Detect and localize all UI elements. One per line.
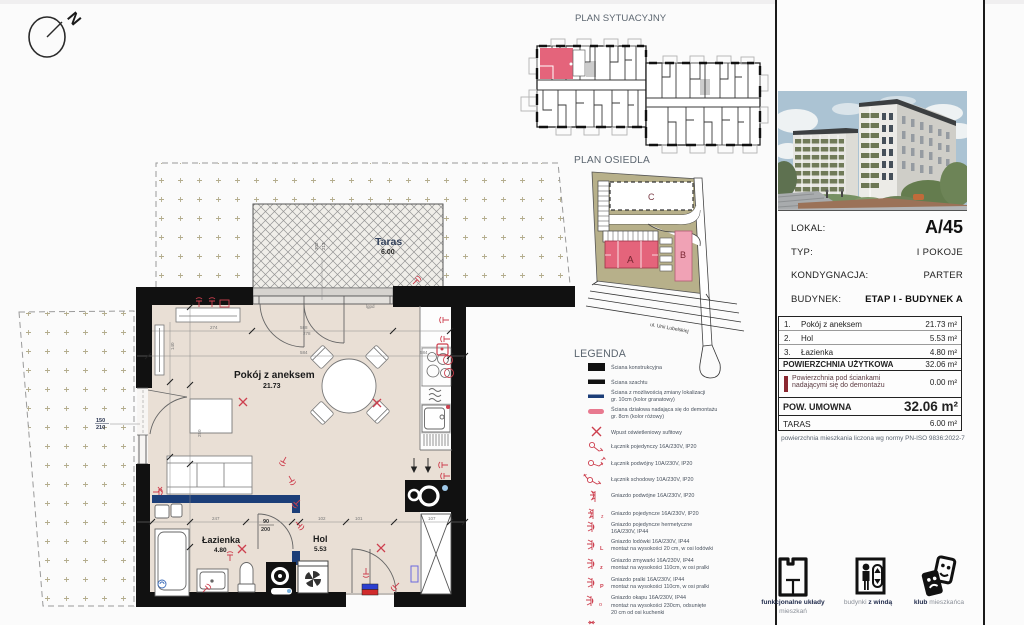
svg-text:150: 150	[96, 418, 105, 424]
svg-text:21.73: 21.73	[263, 383, 281, 390]
svg-text:Hol: Hol	[313, 534, 328, 544]
svg-text:Wpust oświetleniowy sufitowy: Wpust oświetleniowy sufitowy	[611, 430, 682, 436]
svg-text:C: C	[648, 192, 655, 202]
svg-text:montaż na wysokości 110cm, w o: montaż na wysokości 110cm, w osi pralki	[611, 584, 709, 590]
svg-text:247: 247	[212, 516, 220, 521]
svg-text:Łącznik pojedynczy 16A/230V, I: Łącznik pojedynczy 16A/230V, IP20	[611, 444, 697, 450]
svg-text:Taras: Taras	[375, 236, 402, 248]
svg-text:200: 200	[261, 527, 270, 533]
svg-text:588: 588	[300, 325, 308, 330]
svg-text:z: z	[600, 565, 603, 571]
svg-text:Ściana działowa nadająca się d: Ściana działowa nadająca się do demontaż…	[611, 405, 717, 413]
svg-text:P: P	[600, 584, 604, 590]
svg-text:Ściana z możliwością zmiany lo: Ściana z możliwością zmiany lokalizacji	[611, 388, 705, 396]
svg-text:z: z	[601, 514, 604, 520]
svg-text:210: 210	[96, 425, 105, 431]
svg-text:Gniazdo pralki 16A/230V, IP44: Gniazdo pralki 16A/230V, IP44	[611, 577, 684, 583]
svg-text:16A/230V, IP44: 16A/230V, IP44	[611, 529, 648, 535]
svg-text:Łącznik schodowy 10A/230V, IP2: Łącznik schodowy 10A/230V, IP20	[611, 477, 694, 483]
svg-text:274: 274	[210, 325, 218, 330]
svg-text:B: B	[680, 250, 686, 260]
svg-text:6.00: 6.00	[381, 249, 395, 256]
svg-text:Łącznik podwójny 10A/230V, IP2: Łącznik podwójny 10A/230V, IP20	[611, 461, 692, 467]
svg-text:5.53: 5.53	[314, 546, 327, 553]
svg-text:PLAN SYTUACYJNY: PLAN SYTUACYJNY	[575, 13, 667, 24]
svg-text:Łazienka: Łazienka	[202, 535, 241, 545]
svg-text:Pokój z aneksem: Pokój z aneksem	[234, 370, 315, 381]
svg-text:o: o	[599, 602, 602, 608]
svg-text:ul. Unii Lubelskiej: ul. Unii Lubelskiej	[650, 322, 689, 335]
svg-text:584: 584	[300, 350, 308, 355]
svg-text:101: 101	[355, 516, 363, 521]
svg-text:20 cm od osi kuchenki: 20 cm od osi kuchenki	[611, 610, 664, 616]
svg-text:PLAN OSIEDLA: PLAN OSIEDLA	[574, 155, 650, 166]
svg-text:Gniazdo podwójne 16A/230V, IP2: Gniazdo podwójne 16A/230V, IP20	[611, 493, 694, 499]
svg-text:302: 302	[314, 242, 319, 250]
svg-text:Ściana konstrukcyjna: Ściana konstrukcyjna	[611, 363, 662, 371]
svg-text:107: 107	[428, 516, 436, 521]
svg-text:montaż na wysokości 110cm, w o: montaż na wysokości 110cm, w osi pralki	[611, 565, 709, 571]
svg-text:213: 213	[321, 242, 326, 250]
svg-text:montaż na wysokości 230cm, ods: montaż na wysokości 230cm, odsunięte	[611, 603, 706, 609]
svg-text:Ściana szachtu: Ściana szachtu	[611, 378, 648, 386]
svg-text:lgpd: lgpd	[366, 304, 375, 309]
svg-text:250: 250	[197, 429, 202, 437]
svg-text:Gniazdo pojedyncze 16A/230V, I: Gniazdo pojedyncze 16A/230V, IP20	[611, 511, 699, 517]
svg-text:gr. 8cm (kolor różowy): gr. 8cm (kolor różowy)	[611, 414, 664, 420]
svg-text:584: 584	[420, 350, 428, 355]
svg-text:4.80: 4.80	[214, 547, 227, 554]
svg-text:L: L	[600, 546, 604, 552]
svg-text:278: 278	[303, 331, 311, 336]
svg-text:Gniazdo lodówki 16A/230V, IP44: Gniazdo lodówki 16A/230V, IP44	[611, 539, 689, 545]
svg-text:Gniazdo zmywarki 16A/230V, IP4: Gniazdo zmywarki 16A/230V, IP44	[611, 558, 694, 564]
svg-text:Gniazdo pojedyncze hermetyczne: Gniazdo pojedyncze hermetyczne	[611, 522, 692, 528]
svg-text:montaż na wysokości 20 cm, w o: montaż na wysokości 20 cm, w osi lodówki	[611, 546, 713, 552]
svg-text:Gniazdo okapu 16A/230V, IP44: Gniazdo okapu 16A/230V, IP44	[611, 595, 686, 601]
svg-text:N: N	[63, 9, 83, 29]
svg-text:102: 102	[318, 516, 326, 521]
svg-text:LEGENDA: LEGENDA	[574, 348, 627, 360]
svg-text:A: A	[627, 255, 634, 266]
svg-text:140: 140	[170, 342, 175, 350]
svg-text:gr. 10cm (kolor granatowy): gr. 10cm (kolor granatowy)	[611, 397, 675, 403]
svg-text:90: 90	[263, 519, 269, 525]
